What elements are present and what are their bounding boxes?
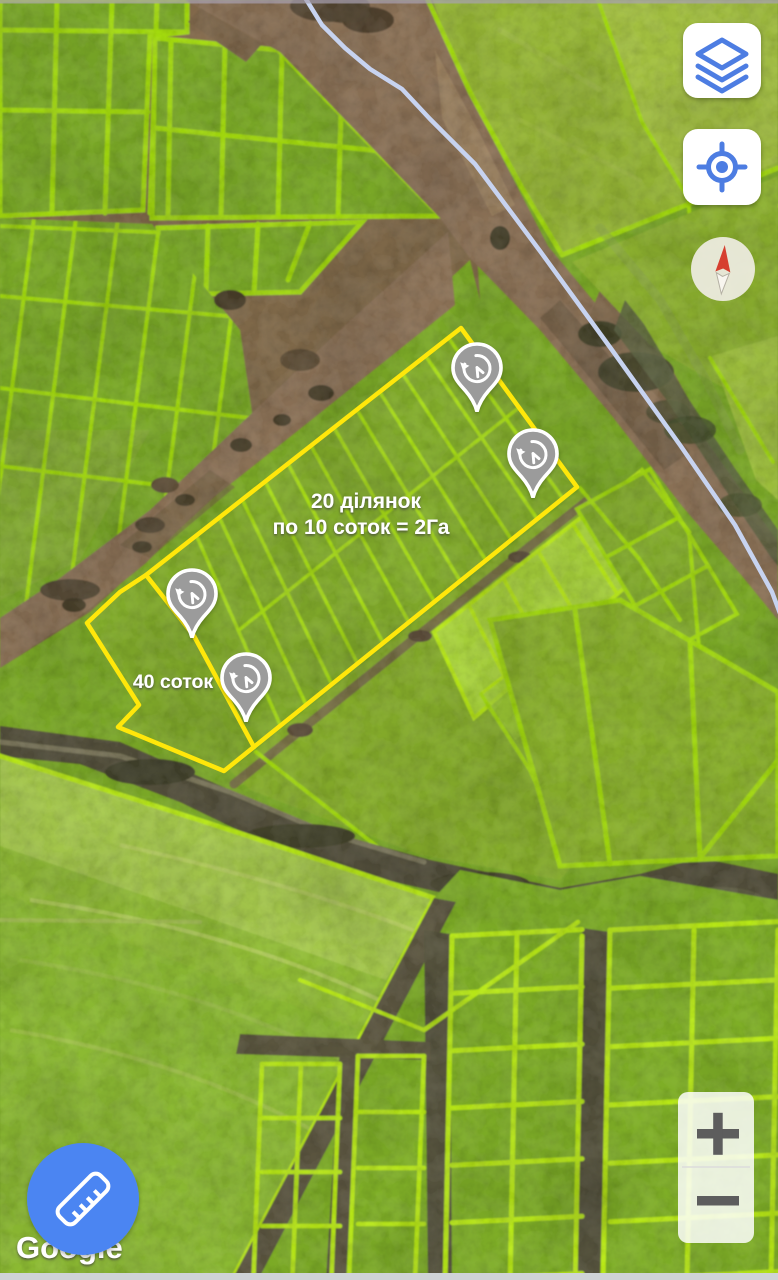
svg-text:40 соток: 40 соток: [133, 671, 214, 693]
svg-text:по 10 соток = 2Га: по 10 соток = 2Га: [273, 516, 450, 539]
svg-text:20 ділянок: 20 ділянок: [311, 490, 421, 513]
